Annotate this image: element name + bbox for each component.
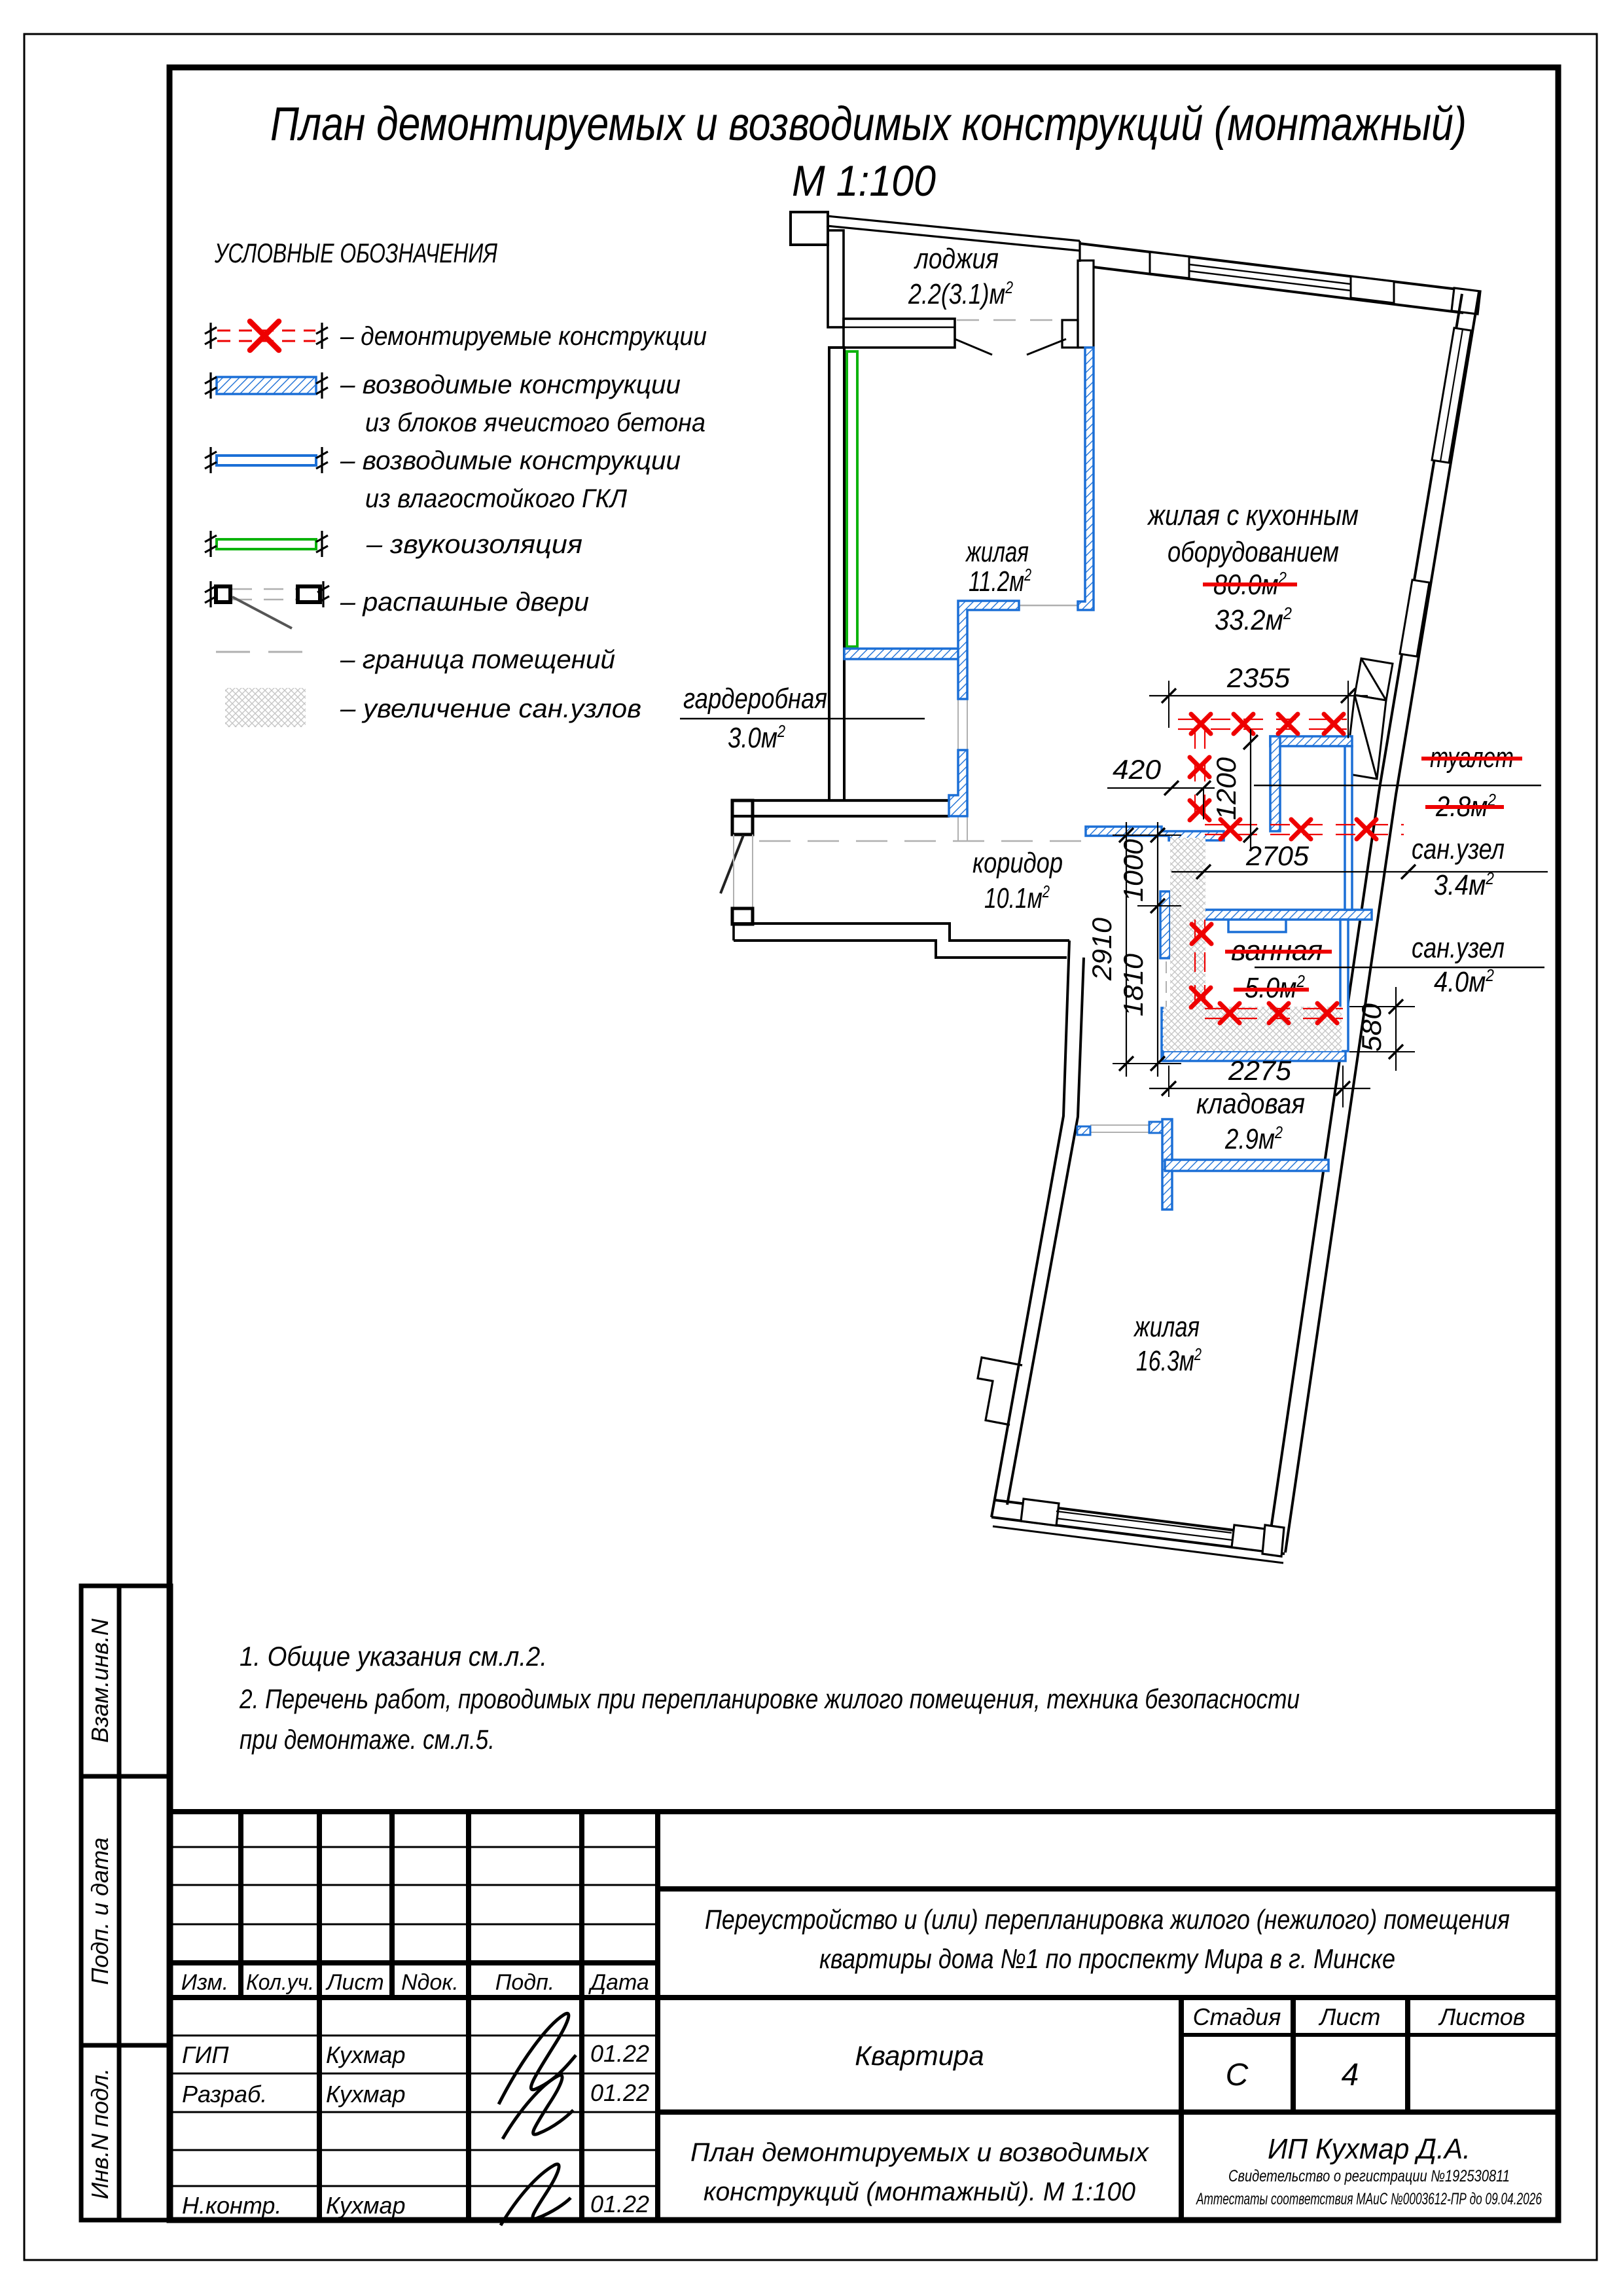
svg-text:– граница помещений: – граница помещений (340, 645, 615, 674)
svg-text:Квартира: Квартира (855, 2040, 984, 2071)
svg-text:кладовая: кладовая (1196, 1088, 1305, 1120)
svg-text:1000: 1000 (1118, 838, 1149, 902)
svg-text:2705: 2705 (1245, 840, 1310, 871)
svg-text:2910: 2910 (1086, 917, 1117, 981)
svg-text:из блоков ячеистого бетона: из блоков ячеистого бетона (365, 408, 705, 437)
svg-text:4: 4 (1342, 2058, 1359, 2092)
svg-text:– распашные двери: – распашные двери (340, 588, 589, 617)
svg-text:Изм.: Изм. (181, 1970, 229, 1995)
svg-text:1. Общие указания см.л.2.: 1. Общие указания см.л.2. (240, 1641, 547, 1672)
svg-text:10.1м2: 10.1м2 (984, 882, 1050, 914)
svg-text:Инв.N подл.: Инв.N подл. (86, 2068, 113, 2199)
svg-text:Подп.: Подп. (495, 1970, 555, 1995)
svg-text:План демонтируемых и возвод: План демонтируемых и возводимых конструк… (270, 98, 1467, 151)
svg-text:Подп. и дата: Подп. и дата (86, 1837, 113, 1984)
svg-text:ИП Кухмар Д.А.: ИП Кухмар Д.А. (1268, 2133, 1471, 2165)
svg-text:УСЛОВНЫЕ ОБОЗНАЧЕНИЯ: УСЛОВНЫЕ ОБОЗНАЧЕНИЯ (214, 238, 497, 268)
svg-text:Nдок.: Nдок. (401, 1970, 459, 1995)
svg-text:Разраб.: Разраб. (182, 2081, 267, 2108)
svg-text:2355: 2355 (1226, 662, 1291, 693)
svg-text:жилая с кухонным: жилая с кухонным (1147, 499, 1359, 531)
svg-text:ГИП: ГИП (182, 2041, 229, 2068)
svg-text:2275: 2275 (1228, 1055, 1292, 1086)
svg-text:Взам.инв.N: Взам.инв.N (86, 1618, 113, 1743)
svg-text:3.0м2: 3.0м2 (728, 721, 785, 754)
svg-text:Лист: Лист (1319, 2003, 1381, 2030)
svg-text:01.22: 01.22 (590, 2191, 649, 2217)
svg-text:11.2м2: 11.2м2 (969, 565, 1031, 598)
svg-text:Кол.уч.: Кол.уч. (246, 1970, 314, 1995)
svg-text:конструкций (монтажный). М 1:1: конструкций (монтажный). М 1:100 (704, 2178, 1135, 2206)
svg-text:коридор: коридор (972, 847, 1063, 879)
svg-text:Листов: Листов (1438, 2003, 1525, 2030)
svg-text:С: С (1226, 2058, 1249, 2092)
svg-text:2.9м2: 2.9м2 (1224, 1122, 1283, 1155)
svg-text:сан.узел: сан.узел (1412, 833, 1505, 865)
svg-text:Кухмар: Кухмар (326, 2041, 406, 2068)
svg-text:– возводимые конструкции: – возводимые конструкции (340, 370, 681, 399)
svg-text:Аттестаты соответствия МАиС №0: Аттестаты соответствия МАиС №0003612-ПР … (1196, 2190, 1542, 2208)
svg-text:16.3м2: 16.3м2 (1136, 1344, 1202, 1377)
svg-text:2.2(3.1)м2: 2.2(3.1)м2 (908, 278, 1013, 310)
svg-text:лоджия: лоджия (913, 243, 999, 275)
svg-text:2. Перечень работ, проводимых: 2. Перечень работ, проводимых при перепл… (239, 1683, 1300, 1714)
svg-text:Лист: Лист (325, 1970, 384, 1995)
svg-text:при демонтаже. см.л.5.: при демонтаже. см.л.5. (240, 1724, 495, 1755)
svg-text:01.22: 01.22 (590, 2079, 649, 2106)
svg-text:сан.узел: сан.узел (1412, 932, 1505, 964)
svg-text:– увеличение сан.узлов: – увеличение сан.узлов (340, 694, 641, 723)
svg-text:– демонтируемые конструкции: – демонтируемые конструкции (340, 322, 707, 351)
svg-text:– звукоизоляция: – звукоизоляция (366, 530, 582, 559)
svg-text:гардеробная: гардеробная (683, 683, 827, 715)
svg-text:3.4м2: 3.4м2 (1434, 869, 1494, 901)
svg-text:01.22: 01.22 (590, 2040, 649, 2067)
svg-text:М 1:100: М 1:100 (792, 156, 936, 205)
svg-text:Н.контр.: Н.контр. (182, 2192, 281, 2219)
svg-text:жилая: жилая (1133, 1311, 1200, 1343)
svg-text:Свидетельство о регистрации №1: Свидетельство о регистрации №192530811 (1228, 2167, 1510, 2185)
svg-text:4.0м2: 4.0м2 (1434, 965, 1494, 998)
svg-text:1810: 1810 (1118, 953, 1149, 1016)
svg-text:Стадия: Стадия (1193, 2003, 1281, 2030)
svg-text:Переустройство и (или) перепла: Переустройство и (или) перепланировка жи… (705, 1904, 1510, 1935)
svg-text:Дата: Дата (588, 1970, 649, 1995)
svg-text:План демонтируемых и возводимы: План демонтируемых и возводимых (690, 2138, 1150, 2167)
svg-text:из влагостойкого ГКЛ: из влагостойкого ГКЛ (365, 484, 628, 513)
svg-text:Кухмар: Кухмар (326, 2081, 406, 2108)
svg-text:33.2м2: 33.2м2 (1215, 603, 1292, 636)
svg-text:580: 580 (1356, 1003, 1387, 1052)
svg-text:– возводимые конструкции: – возводимые конструкции (340, 446, 681, 475)
svg-text:420: 420 (1113, 754, 1162, 785)
svg-text:жилая: жилая (965, 536, 1029, 568)
svg-text:1200: 1200 (1211, 757, 1241, 820)
svg-text:квартиры дома №1 по проспекту: квартиры дома №1 по проспекту Мира в г. … (819, 1943, 1395, 1974)
svg-text:Кухмар: Кухмар (326, 2192, 406, 2219)
svg-text:оборудованием: оборудованием (1168, 536, 1339, 568)
